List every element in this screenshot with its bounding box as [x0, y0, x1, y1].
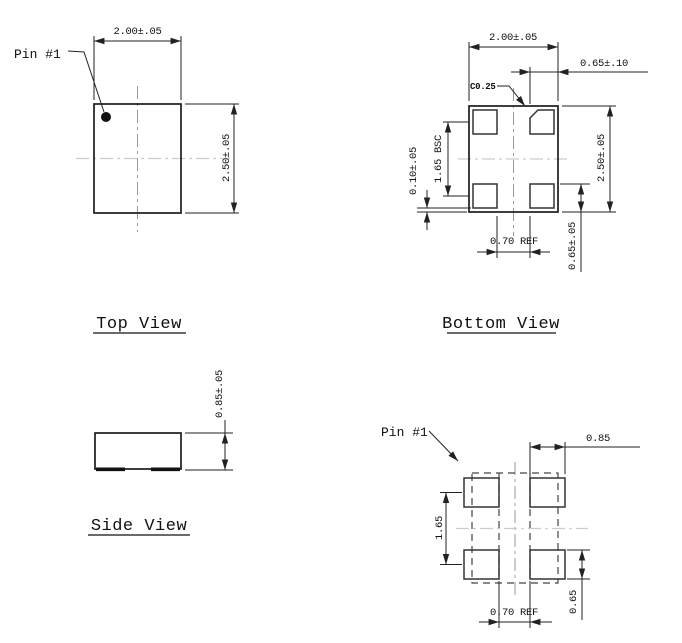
dim-pad-height-text: 0.65±.05 — [567, 222, 579, 270]
dim-height-text: 2.50±.05 — [221, 134, 233, 182]
dimension-height: 2.50±.05 — [185, 104, 239, 213]
top-view-title: Top View — [96, 315, 182, 334]
dim-thickness-text: 0.85±.05 — [214, 370, 226, 418]
terminal-top-left — [473, 110, 497, 134]
dimension-pad-height: 0.65 — [567, 550, 590, 620]
dimension-pad-gap: 0.70 REF — [477, 216, 550, 258]
dim-pad-width-text: 0.85 — [586, 433, 610, 445]
dim-pad-gap-text: 0.70 REF — [490, 607, 538, 619]
terminal-bottom-right — [530, 184, 554, 208]
bottom-view: 2.00±.05 0.65±.10 C0.25 1.65 BSC — [408, 32, 648, 334]
pin1-leader-line — [429, 431, 458, 461]
dimension-thickness: 0.85±.05 — [185, 370, 233, 470]
pin1-leader-line — [68, 51, 104, 112]
mechanical-drawing: Pin #1 2.00±.05 2.50±.05 Top View — [0, 0, 682, 643]
pin1-label: Pin #1 — [381, 425, 428, 440]
land-pad-top-left — [464, 478, 499, 507]
side-view: 0.85±.05 Side View — [88, 370, 233, 536]
side-view-title: Side View — [91, 517, 188, 536]
package-body-outline — [95, 433, 181, 469]
pin1-dot — [101, 112, 111, 122]
chamfer-text: C0.25 — [470, 82, 496, 92]
terminal-bottom-left — [473, 184, 497, 208]
package-drawing-page: Pin #1 2.00±.05 2.50±.05 Top View — [0, 0, 682, 643]
land-pad-bottom-right — [530, 550, 565, 579]
chamfer-callout: C0.25 — [470, 82, 525, 106]
dimension-pad-width: 0.65±.10 — [511, 58, 648, 104]
dimension-height: 2.50±.05 — [562, 106, 616, 212]
dim-width-text: 2.00±.05 — [489, 32, 537, 44]
dimension-pad-height: 0.65±.05 — [560, 184, 590, 272]
dim-pitch-text: 1.65 — [434, 516, 446, 540]
dim-standoff-text: 0.10±.05 — [408, 147, 420, 195]
pin1-label: Pin #1 — [14, 47, 61, 62]
dim-pad-width-text: 0.65±.10 — [580, 58, 628, 70]
dimension-pad-width: 0.85 — [530, 433, 640, 474]
top-view: Pin #1 2.00±.05 2.50±.05 Top View — [14, 26, 239, 334]
terminal-top-right-chamfered — [530, 110, 554, 134]
land-pad-bottom-left — [464, 550, 499, 579]
dim-height-text: 2.50±.05 — [596, 134, 608, 182]
land-pad-top-right — [530, 478, 565, 507]
dim-pitch-text: 1.65 BSC — [433, 135, 445, 183]
dim-width-text: 2.00±.05 — [113, 26, 161, 38]
land-pattern-view: Pin #1 0.85 1.65 0.65 — [381, 425, 640, 628]
dim-pad-gap-text: 0.70 REF — [490, 236, 538, 248]
dim-pad-height-text: 0.65 — [568, 590, 580, 614]
bottom-view-title: Bottom View — [442, 315, 560, 334]
